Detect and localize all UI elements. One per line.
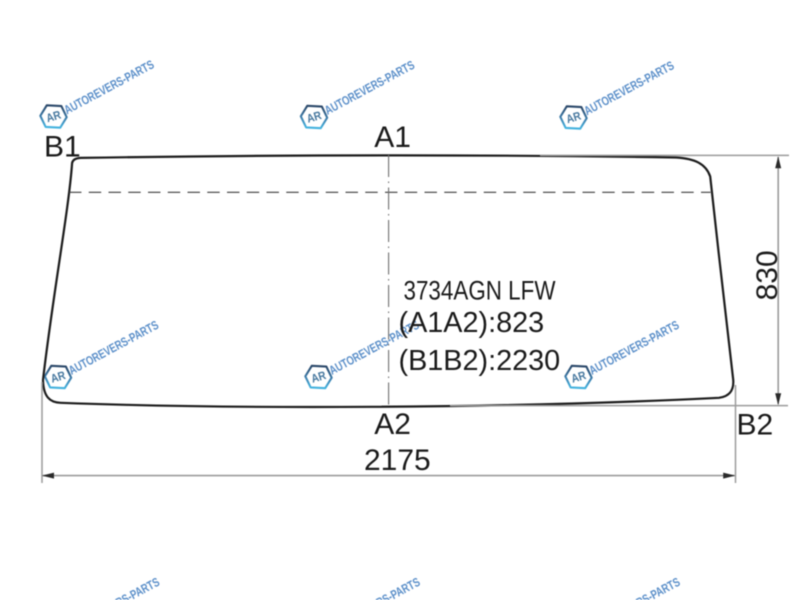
svg-text:(B1B2):2230: (B1B2):2230 [399, 345, 561, 377]
svg-text:B1: B1 [44, 130, 81, 163]
svg-text:2175: 2175 [364, 444, 431, 477]
svg-text:(A1A2):823: (A1A2):823 [399, 307, 545, 339]
svg-text:A1: A1 [374, 121, 411, 154]
svg-text:B2: B2 [737, 409, 774, 442]
svg-text:A2: A2 [374, 408, 411, 441]
svg-text:830: 830 [751, 250, 784, 300]
svg-text:3734AGN LFW: 3734AGN LFW [404, 275, 556, 305]
